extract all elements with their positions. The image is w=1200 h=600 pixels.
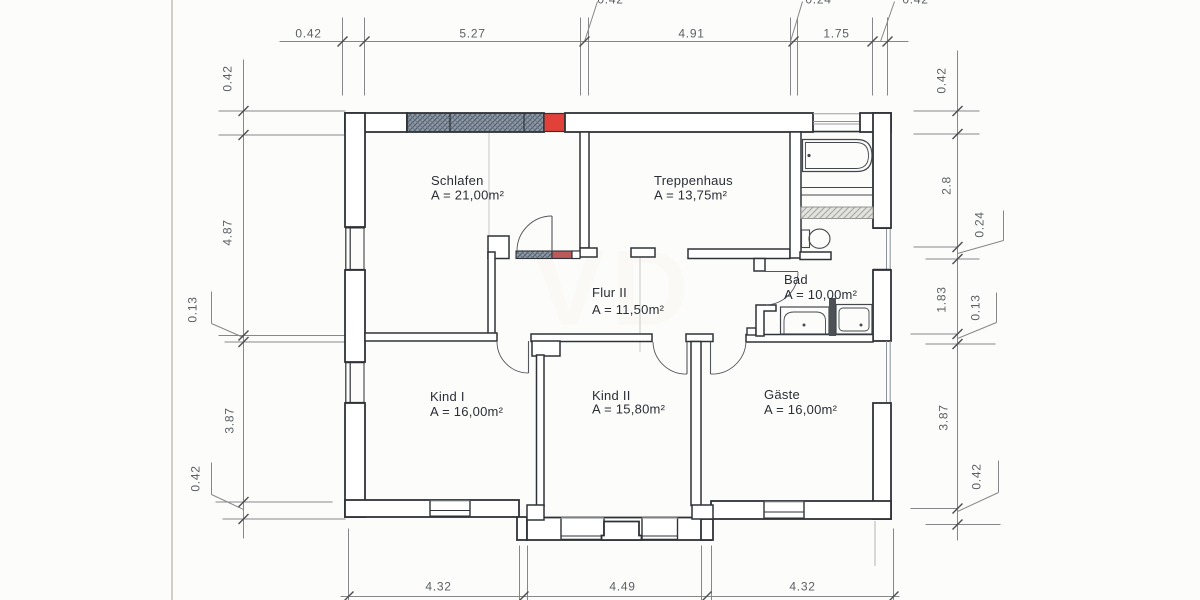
svg-text:4.91: 4.91: [678, 27, 704, 41]
svg-text:0.42: 0.42: [902, 0, 928, 7]
svg-text:A = 11,50m²: A = 11,50m²: [592, 302, 665, 317]
svg-text:0.42: 0.42: [935, 67, 949, 93]
svg-text:1.83: 1.83: [935, 286, 949, 312]
svg-text:Bad: Bad: [784, 272, 808, 287]
svg-text:Schlafen: Schlafen: [431, 173, 484, 188]
svg-text:0.42: 0.42: [970, 463, 984, 489]
svg-text:4.49: 4.49: [609, 580, 635, 594]
svg-text:Flur II: Flur II: [592, 285, 627, 300]
svg-text:4.32: 4.32: [789, 580, 815, 594]
svg-text:A = 15,80m²: A = 15,80m²: [592, 402, 666, 417]
svg-text:0.42: 0.42: [221, 65, 235, 91]
svg-text:2.8: 2.8: [940, 176, 954, 195]
svg-text:A = 16,00m²: A = 16,00m²: [430, 404, 504, 419]
svg-text:1.75: 1.75: [823, 27, 849, 41]
svg-text:0.42: 0.42: [189, 465, 203, 491]
svg-text:0.13: 0.13: [186, 296, 200, 322]
svg-text:3.87: 3.87: [937, 404, 951, 430]
svg-text:4.87: 4.87: [221, 219, 235, 245]
svg-text:A = 16,00m²: A = 16,00m²: [764, 402, 838, 417]
svg-text:0.42: 0.42: [295, 27, 321, 41]
svg-text:Gäste: Gäste: [764, 387, 800, 402]
svg-text:0.24: 0.24: [973, 211, 987, 237]
svg-text:0.42: 0.42: [597, 0, 623, 7]
svg-text:3.87: 3.87: [223, 407, 237, 433]
svg-text:A = 10,00m²: A = 10,00m²: [784, 287, 858, 302]
svg-text:Kind I: Kind I: [430, 389, 465, 404]
svg-text:Treppenhaus: Treppenhaus: [654, 173, 733, 188]
svg-text:A = 21,00m²: A = 21,00m²: [431, 188, 505, 203]
svg-text:4.32: 4.32: [425, 580, 451, 594]
svg-text:0.24: 0.24: [805, 0, 831, 7]
svg-text:0.13: 0.13: [969, 294, 983, 320]
svg-text:A = 13,75m²: A = 13,75m²: [654, 188, 728, 203]
svg-text:5.27: 5.27: [459, 27, 485, 41]
